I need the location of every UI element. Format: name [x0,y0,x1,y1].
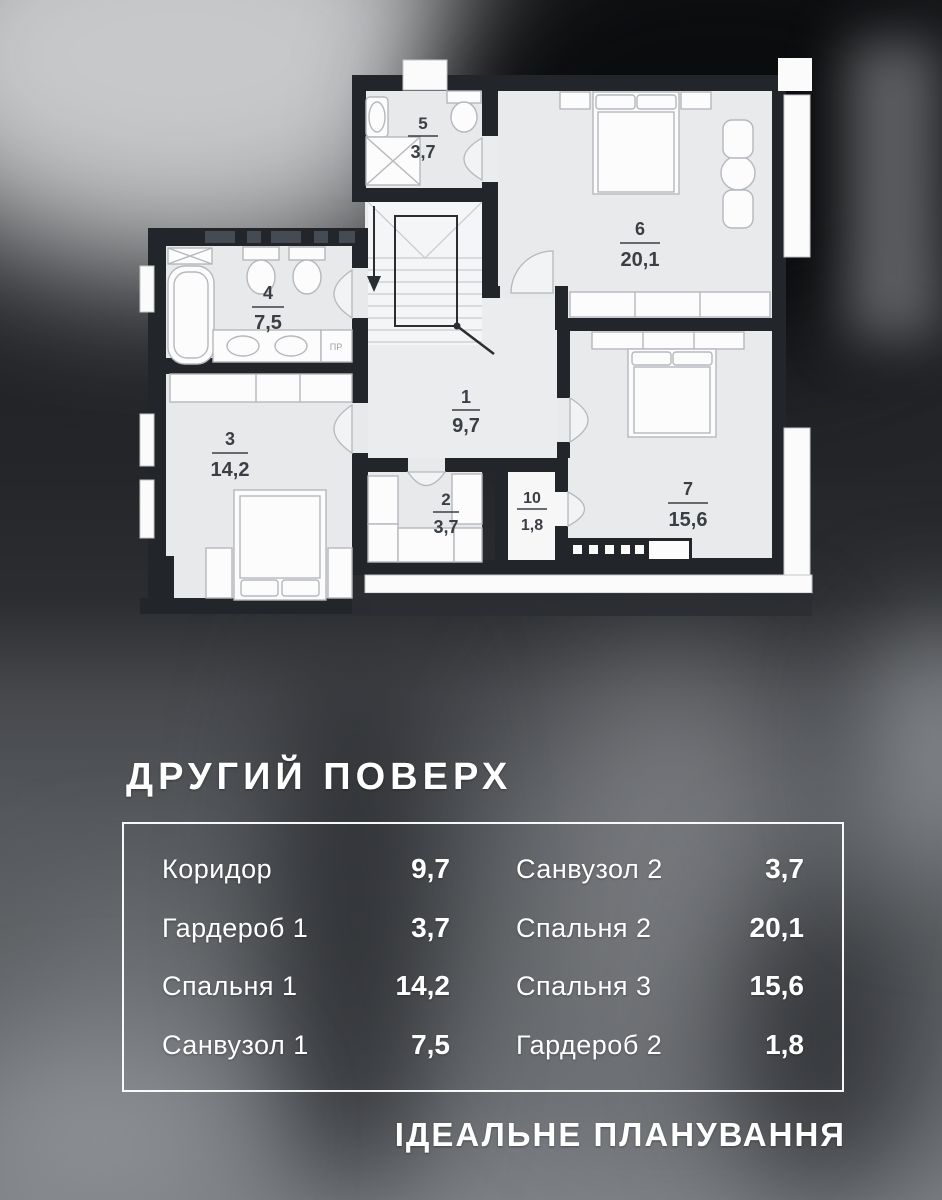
handrail-post [454,323,461,330]
svg-text:2: 2 [441,490,450,509]
svg-text:20,1: 20,1 [621,249,660,271]
pillow [596,95,635,109]
svg-text:5: 5 [418,114,427,133]
window [784,95,810,257]
area-table: Коридор 9,7 Гардероб 1 3,7 Спальня 1 14,… [122,822,844,1092]
window [403,60,447,90]
pillow [282,580,319,596]
room-name: Санвузол 2 [516,854,663,885]
background-blob [846,40,942,340]
svg-text:9,7: 9,7 [452,415,480,437]
svg-text:7: 7 [683,479,693,499]
terrace-band [365,575,812,593]
toilet-bowl [293,260,321,294]
room-area: 14,2 [396,970,451,1002]
room-area: 20,1 [750,912,805,944]
room-area: 3,7 [765,853,804,885]
sink-bowl [369,102,385,132]
pillow [637,95,676,109]
table-row: Спальня 2 20,1 [516,912,804,944]
svg-text:14,2: 14,2 [211,459,250,481]
room-name: Санвузол 1 [162,1030,309,1061]
room-name: Спальня 3 [516,971,652,1002]
room-area: 1,8 [765,1029,804,1061]
svg-text:7,5: 7,5 [254,312,282,334]
table-row: Гардероб 2 1,8 [516,1029,804,1061]
area-table-left-column: Коридор 9,7 Гардероб 1 3,7 Спальня 1 14,… [162,840,450,1074]
toilet-tank [447,91,481,103]
dining-table [721,156,755,190]
washer-label: ПР [330,342,342,352]
chair [723,120,753,158]
stairwell [368,202,482,345]
pillow [673,352,712,365]
area-table-right-column: Санвузол 2 3,7 Спальня 2 20,1 Спальня 3 … [516,840,804,1074]
svg-text:4: 4 [263,283,273,303]
room-area: 15,6 [750,970,805,1002]
pillow [632,352,671,365]
shelf [368,524,398,562]
window [140,414,154,466]
window [140,266,154,312]
nightstand [560,92,590,109]
toilet-bowl [451,102,477,132]
table-row: Гардероб 1 3,7 [162,912,450,944]
table-row: Санвузол 2 3,7 [516,853,804,885]
svg-text:1: 1 [461,387,471,407]
floor-plan: ПР 1 9,7 2 3,7 3 14,2 4 7,5 5 3,7 6 [118,50,824,625]
svg-text:1,8: 1,8 [521,517,543,534]
lower-wall-shadow [352,593,812,616]
toilet-tank [243,247,279,260]
corridor [482,298,557,460]
media-unit [565,538,692,561]
shelf [368,476,398,524]
svg-text:6: 6 [635,219,645,239]
room-name: Спальня 2 [516,913,652,944]
wardrobe-row [170,374,352,402]
room-name: Гардероб 1 [162,913,308,944]
svg-text:3,7: 3,7 [433,517,458,537]
nightstand [206,548,232,598]
room-name: Коридор [162,854,272,885]
room-area: 3,7 [411,912,450,944]
table-row: Санвузол 1 7,5 [162,1029,450,1061]
table-row: Коридор 9,7 [162,853,450,885]
window [784,428,810,576]
svg-text:3,7: 3,7 [410,142,435,162]
svg-text:15,6: 15,6 [669,509,708,531]
svg-text:10: 10 [523,490,541,507]
nightstand [681,92,711,109]
page-title: ДРУГИЙ ПОВЕРХ [126,756,512,799]
table-row: Спальня 3 15,6 [516,970,804,1002]
room-name: Гардероб 2 [516,1030,662,1061]
window [140,480,154,538]
vanity-sink [227,336,259,356]
wardrobe-row [592,332,744,349]
chair [723,190,753,228]
vanity-sink [275,336,307,356]
room-area: 9,7 [411,853,450,885]
pillow [241,580,278,596]
footer-slogan: ІДЕАЛЬНЕ ПЛАНУВАННЯ [300,1116,846,1154]
window [778,58,812,91]
wardrobe-row [570,292,770,317]
svg-text:3: 3 [225,429,235,449]
toilet-tank [289,247,325,260]
nightstand [328,548,352,598]
room-name: Спальня 1 [162,971,298,1002]
room-area: 7,5 [411,1029,450,1061]
table-row: Спальня 1 14,2 [162,970,450,1002]
